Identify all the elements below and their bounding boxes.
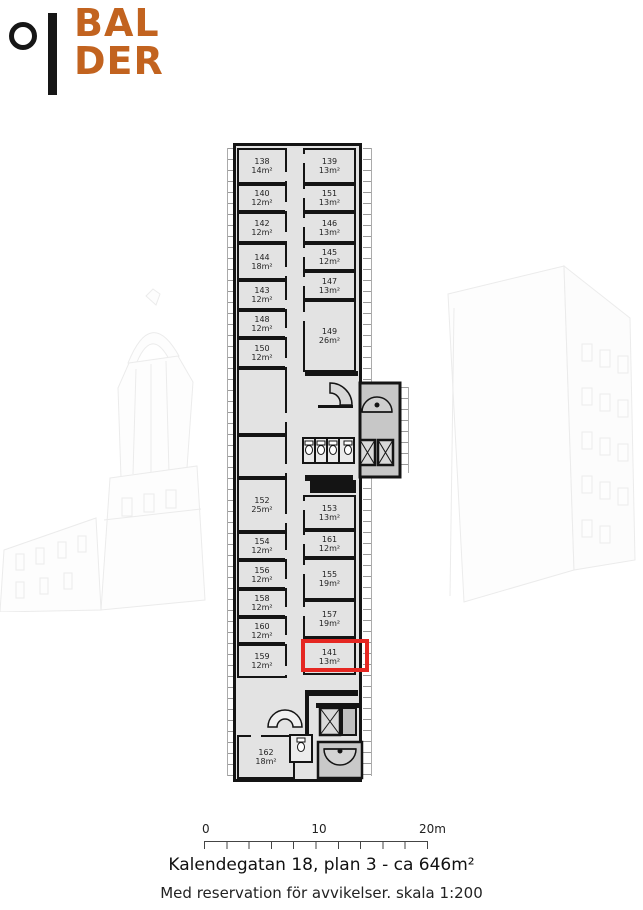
wc-stalls	[303, 438, 354, 463]
door-opening	[285, 579, 287, 588]
room-area: 12m²	[251, 324, 272, 333]
mid-service-core	[298, 365, 406, 497]
room-155: 15519m²	[303, 558, 356, 600]
room-159: 15912m²	[237, 644, 287, 678]
room-number: 150	[254, 344, 269, 353]
room-number: 144	[254, 253, 269, 262]
door-opening	[285, 666, 287, 675]
door-opening	[303, 277, 305, 286]
door-opening	[303, 312, 305, 321]
room-unlabeled	[237, 435, 287, 478]
door-opening	[303, 218, 305, 227]
background-building-right-illustration	[424, 248, 643, 612]
door-opening	[285, 635, 287, 644]
door-opening	[285, 202, 287, 211]
room-area: 13m²	[319, 513, 340, 522]
room-area: 19m²	[319, 619, 340, 628]
room-143: 14312m²	[237, 280, 287, 310]
room-156: 15612m²	[237, 560, 287, 589]
logo-circle-icon	[9, 22, 37, 50]
room-area: 12m²	[251, 198, 272, 207]
scale-label-20: 20m	[419, 822, 446, 836]
room-150: 15012m²	[237, 338, 287, 368]
scale-bar-labels: 0 10 20m	[204, 822, 434, 837]
scale-label-0: 0	[202, 822, 210, 836]
logo-wordmark-line2: DER	[74, 42, 164, 80]
room-148: 14812m²	[237, 310, 287, 338]
dome-stairs-room	[318, 742, 362, 778]
room-number: 159	[254, 652, 269, 661]
room-area: 12m²	[251, 228, 272, 237]
core-wall	[305, 690, 358, 696]
room-number: 157	[322, 610, 337, 619]
room-area: 18m²	[251, 262, 272, 271]
room-142: 14212m²	[237, 212, 287, 243]
scale-bar: 0 10 20m	[204, 822, 434, 852]
room-area: 19m²	[319, 579, 340, 588]
room-number: 153	[322, 504, 337, 513]
room-number: 145	[322, 248, 337, 257]
spiral-stairs-icon	[318, 383, 353, 408]
door-opening	[303, 501, 305, 510]
door-opening	[303, 565, 305, 574]
scale-bar-ticks	[204, 841, 428, 849]
door-opening	[285, 172, 287, 181]
room-area: 12m²	[319, 544, 340, 553]
room-153: 15313m²	[303, 495, 356, 530]
room-area: 12m²	[251, 295, 272, 304]
room-area: 12m²	[251, 546, 272, 555]
door-opening	[303, 154, 305, 163]
room-152: 15225m²	[237, 478, 287, 532]
door-opening	[303, 535, 305, 544]
background-building-left-illustration	[0, 268, 232, 612]
room-area: 13m²	[319, 198, 340, 207]
door-opening	[285, 464, 287, 473]
core-wall	[310, 480, 356, 493]
room-unlabeled	[237, 368, 287, 435]
room-number: 156	[254, 566, 269, 575]
core-wall	[305, 371, 358, 376]
room-number: 142	[254, 219, 269, 228]
door-opening	[285, 300, 287, 309]
page: BAL DER 13814m²13913m²14012m²15113m²1421…	[0, 0, 643, 910]
door-opening	[285, 358, 287, 367]
wc-room	[290, 735, 312, 762]
caption-disclaimer: Med reservation för avvikelser. skala 1:…	[0, 884, 643, 902]
door-opening	[285, 514, 287, 523]
room-number: 151	[322, 189, 337, 198]
door-opening	[285, 232, 287, 241]
room-number: 155	[322, 570, 337, 579]
door-opening	[285, 607, 287, 616]
door-opening	[285, 550, 287, 559]
balder-logo: BAL DER	[8, 8, 208, 108]
room-number: 158	[254, 594, 269, 603]
room-area: 13m²	[319, 286, 340, 295]
core-wall	[305, 696, 309, 737]
room-158: 15812m²	[237, 589, 287, 617]
floor-plan: 13814m²13913m²14012m²15113m²14212m²14613…	[228, 140, 408, 792]
room-147: 14713m²	[303, 271, 356, 300]
room-area: 14m²	[251, 166, 272, 175]
door-opening	[303, 248, 305, 257]
room-number: 146	[322, 219, 337, 228]
logo-bar-icon	[48, 13, 57, 95]
shaft	[342, 708, 356, 735]
caption-title: Kalendegatan 18, plan 3 - ca 646m²	[0, 855, 643, 875]
room-area: 12m²	[251, 353, 272, 362]
room-number: 147	[322, 277, 337, 286]
elevator-icon	[320, 708, 340, 735]
room-area: 12m²	[251, 631, 272, 640]
door-opening	[303, 189, 305, 198]
room-number: 154	[254, 537, 269, 546]
room-160: 16012m²	[237, 617, 287, 644]
room-161: 16112m²	[303, 530, 356, 558]
room-138: 13814m²	[237, 148, 287, 184]
room-area: 25m²	[251, 505, 272, 514]
curved-stairs-icon	[268, 710, 302, 727]
door-opening	[303, 607, 305, 616]
logo-wordmark-line1: BAL	[74, 4, 164, 42]
room-number: 139	[322, 157, 337, 166]
room-151: 15113m²	[303, 184, 356, 212]
room-area: 12m²	[251, 575, 272, 584]
room-number: 152	[254, 496, 269, 505]
room-149: 14926m²	[303, 300, 356, 372]
logo-wordmark: BAL DER	[74, 4, 164, 80]
room-145: 14512m²	[303, 243, 356, 271]
room-146: 14613m²	[303, 212, 356, 243]
room-157: 15719m²	[303, 600, 356, 638]
room-number: 140	[254, 189, 269, 198]
room-area: 26m²	[319, 336, 340, 345]
room-area: 13m²	[319, 166, 340, 175]
room-144: 14418m²	[237, 243, 287, 280]
room-number: 149	[322, 327, 337, 336]
room-number: 161	[322, 535, 337, 544]
room-area: 12m²	[319, 257, 340, 266]
room-154: 15412m²	[237, 532, 287, 560]
scale-label-10: 10	[311, 822, 326, 836]
room-area: 12m²	[251, 661, 272, 670]
room-area: 12m²	[251, 603, 272, 612]
bottom-service-core	[258, 685, 378, 785]
room-number: 160	[254, 622, 269, 631]
room-140: 14012m²	[237, 184, 287, 212]
room-number: 143	[254, 286, 269, 295]
door-opening	[285, 267, 287, 276]
room-number: 148	[254, 315, 269, 324]
door-opening	[285, 413, 287, 422]
highlight-box-room-141	[301, 639, 369, 672]
door-opening	[285, 328, 287, 337]
room-number: 138	[254, 157, 269, 166]
room-139: 13913m²	[303, 148, 356, 184]
room-area: 13m²	[319, 228, 340, 237]
